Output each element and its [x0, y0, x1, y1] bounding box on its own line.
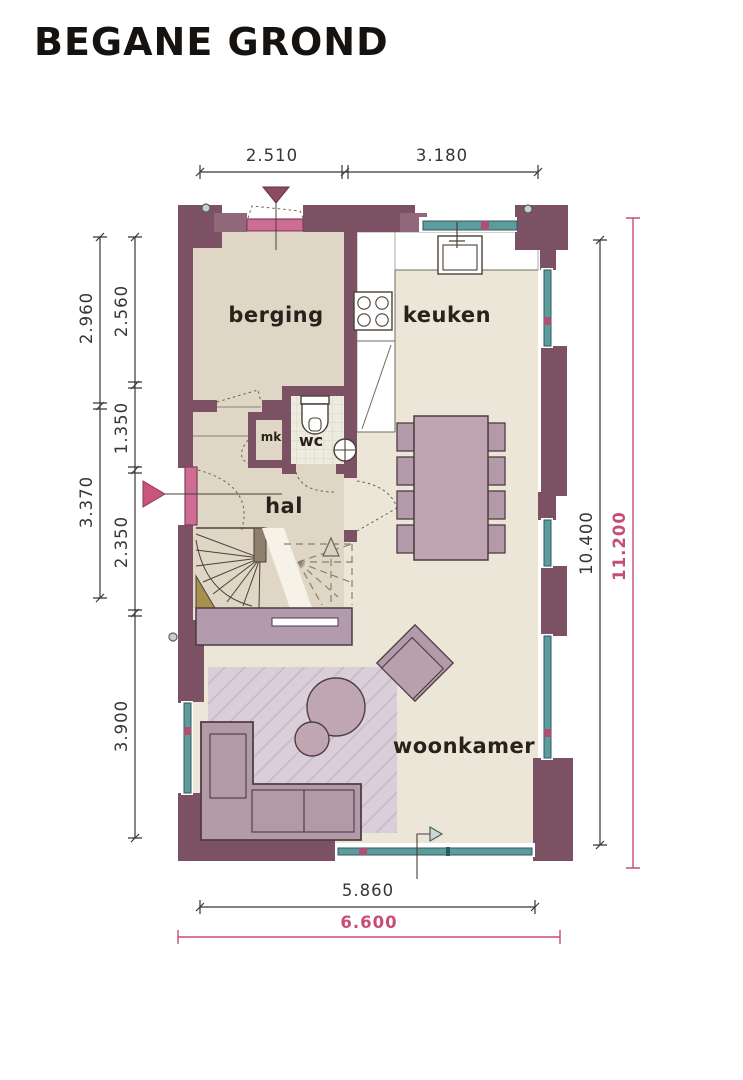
window-bottom: [338, 848, 532, 855]
toilet-cistern: [301, 396, 329, 404]
chair: [397, 457, 414, 485]
downpipe-dot-left: [169, 633, 177, 641]
dim-left-inner-4: 3.900: [112, 700, 131, 752]
downpipe-dot-tr: [524, 205, 532, 213]
dining-table: [414, 416, 488, 560]
chair: [397, 491, 414, 519]
dim-left-outer-1: 2.960: [77, 292, 96, 344]
dim-bottom-inner: 5.860: [342, 881, 394, 900]
window-top-mullion: [481, 221, 489, 230]
mk-wall-bottom: [248, 460, 291, 468]
entrance-arrow-triangle: [143, 481, 165, 507]
dim-left-outer-2: 3.370: [77, 476, 96, 528]
chair: [397, 423, 414, 451]
wall-left-upper: [178, 248, 193, 462]
wall-step-tl: [214, 213, 247, 232]
dim-left-inner-2: 1.350: [112, 402, 131, 454]
sink: [438, 236, 482, 274]
counter-side-run: [357, 232, 395, 432]
toilet-bowl: [302, 404, 328, 434]
room-label-hal: hal: [265, 494, 303, 518]
dim-bottom-total: 6.600: [340, 913, 397, 932]
wall-right-1: [540, 250, 556, 270]
wall-right-step: [538, 492, 556, 520]
window-right-mullion-1: [544, 317, 551, 325]
window-bottom-joint: [446, 847, 450, 856]
coffee-table-small: [295, 722, 329, 756]
door-berging-exterior: [247, 219, 303, 231]
wall-berging-hal-left: [193, 400, 217, 412]
floor-plan-drawing: berging keuken wc mk hal woonkamer 2.510…: [0, 0, 743, 1080]
window-right-mullion-2: [544, 729, 551, 737]
wc-wall-top: [282, 386, 344, 396]
wall-bottom: [193, 840, 335, 861]
wall-berging-hal-right: [262, 400, 282, 412]
room-label-wc: wc: [299, 431, 323, 450]
window-left-woonkamer: [184, 703, 191, 793]
room-label-keuken: keuken: [403, 303, 491, 327]
window-left-mullion: [184, 727, 191, 735]
wall-right-pier-1: [541, 346, 567, 496]
room-label-woonkamer: woonkamer: [393, 734, 535, 758]
wall-corner-br: [533, 758, 573, 861]
wall-interior-stub: [344, 530, 357, 542]
window-right-keuken: [544, 270, 551, 346]
wall-corner-tr: [515, 205, 568, 250]
chair: [488, 423, 505, 451]
dim-left-inner-1: 2.560: [112, 285, 131, 337]
chair: [397, 525, 414, 553]
window-bottom-mullion: [359, 848, 367, 855]
chair: [488, 457, 505, 485]
floor-plan-page: BEGANE GROND: [0, 0, 743, 1080]
chair: [488, 491, 505, 519]
dim-top-1: 2.510: [246, 146, 298, 165]
window-right-woonkamer: [544, 636, 551, 758]
dim-top-2: 3.180: [416, 146, 468, 165]
window-right-mid: [544, 520, 551, 566]
door-front-entrance: [185, 467, 197, 525]
entry-marker-top-triangle: [263, 187, 289, 203]
room-label-berging: berging: [228, 303, 323, 327]
downpipe-dot-tl: [202, 204, 210, 212]
room-label-mk: mk: [261, 430, 283, 444]
dim-left-inner-3: 2.350: [112, 516, 131, 568]
window-top: [423, 221, 517, 230]
dim-right-inner: 10.400: [577, 511, 596, 575]
under-stair-slot: [272, 618, 338, 626]
mk-wall-left: [248, 412, 256, 468]
wall-right-pier-2: [541, 566, 567, 636]
dim-right-total: 11.200: [610, 511, 629, 581]
chair: [488, 525, 505, 553]
wall-top-mid: [303, 205, 415, 232]
